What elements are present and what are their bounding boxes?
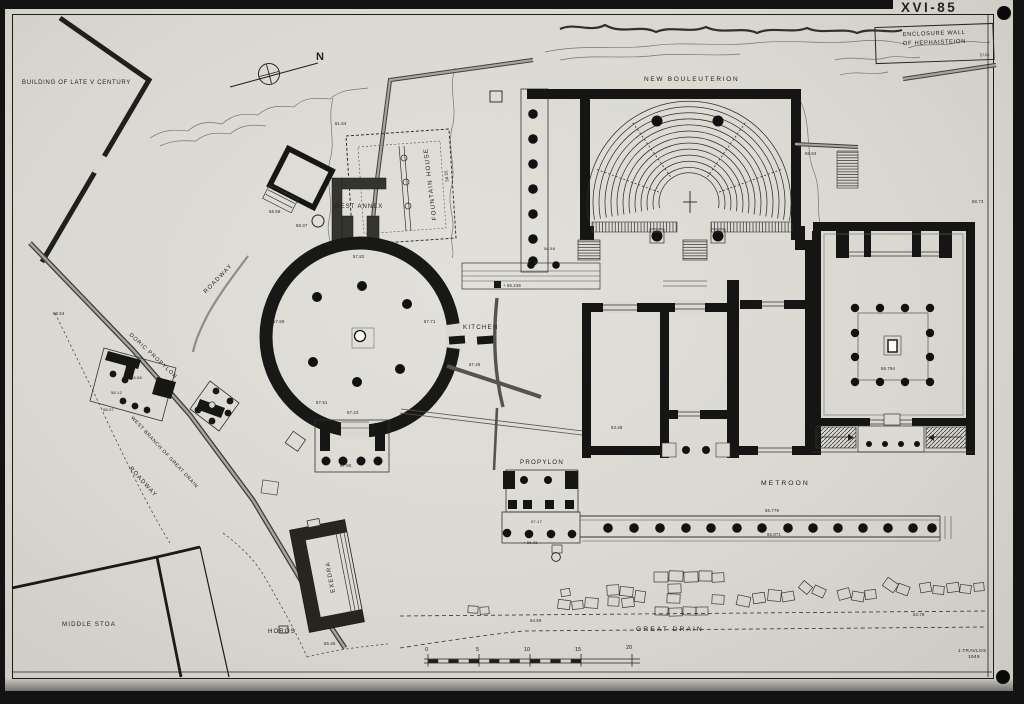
label-roadway-1: ROADWAY	[203, 263, 234, 295]
label-kitchen: KITCHEN	[463, 325, 499, 331]
label-elev-5743: 57.43	[347, 411, 358, 415]
label-elev-5459: 54.59	[530, 619, 541, 623]
label-new-bouleuterion: NEW BOULEUTERION	[644, 77, 739, 84]
label-north-n: N	[316, 52, 324, 63]
label-elev-5654: 56.54	[53, 312, 64, 316]
label-elev-5856: 58.56	[269, 210, 280, 214]
label-fountain-house: FOUNTAIN HOUSE	[423, 147, 438, 220]
label-elev-5812: 58.12	[111, 391, 122, 395]
label-building-late-v: BUILDING OF LATE V CENTURY	[22, 80, 131, 86]
label-elev-55871: 55.871	[767, 533, 781, 537]
label-elev-6164: 61.64	[335, 122, 346, 126]
label-sheet-number: XVI-85	[901, 1, 957, 15]
label-elev-5746: 57.46	[469, 363, 480, 367]
label-propylon: PROPYLON	[520, 460, 564, 466]
label-elev-5791: 57.91	[316, 401, 327, 405]
photo-top-edge	[0, 0, 893, 9]
label-elev-5765: 57.65	[340, 464, 351, 468]
label-middle-stoa: MIDDLE STOA	[62, 622, 116, 628]
label-exedra: EXEDRA	[325, 561, 336, 593]
label-scale-5: 5	[476, 648, 479, 654]
label-elev-5769: 57.69	[273, 320, 284, 324]
label-elev-5807: 58.07	[103, 408, 114, 412]
label-scale-10: 10	[524, 648, 530, 654]
label-west-annex: WEST ANNEX	[334, 204, 383, 210]
site-plan-photo: XVI-85BUILDING OF LATE V CENTURYN61.64FO…	[0, 0, 1024, 704]
label-elev-5886: 58.86	[131, 376, 142, 380]
label-signature-year: 1949	[968, 656, 980, 661]
label-elev-5858: 58.58	[544, 247, 555, 251]
enclosure-wall-label-line1: ENCLOSURE WALL	[876, 29, 993, 39]
plan-labels-layer: XVI-85BUILDING OF LATE V CENTURYN61.64FO…	[0, 0, 1024, 704]
label-elev-5855: 58.55	[444, 170, 450, 182]
label-elev-56794: 56.794	[881, 367, 895, 371]
label-doric-propylon: DORIC PROPYLON	[127, 333, 177, 381]
label-great-drain: GREAT DRAIN	[636, 627, 704, 634]
label-elev-5782: 57.82	[353, 255, 364, 259]
label-scale-0: 0	[425, 648, 428, 654]
label-metroon: METROON	[761, 481, 810, 488]
label-elev-5625: + 56.25	[523, 541, 538, 545]
label-horos: HOROS	[268, 629, 296, 635]
label-elev-55236: + 55.236	[503, 284, 521, 288]
label-scale-20: 20	[626, 646, 632, 652]
label-elev-5771: 57.71	[424, 320, 435, 324]
label-elev-5348: 53.48	[611, 426, 622, 430]
label-elev-5837: 58.37	[296, 224, 307, 228]
label-elev-5884: 58.84	[805, 152, 816, 156]
label-scale-15: 15	[575, 648, 581, 654]
label-elev-5717: 57.17	[531, 520, 542, 524]
label-elev-56779: 56.779	[765, 509, 779, 513]
enclosure-wall-elevation: 57.61	[980, 53, 990, 57]
label-elev-5378: 53.78	[913, 613, 924, 617]
label-elev-5546: 55.46	[324, 642, 335, 646]
enclosure-wall-label-line2: OF HEPHAISTEION	[876, 38, 993, 48]
label-roadway-2: ROADWAY	[128, 466, 158, 499]
label-elev-5873: 58.73	[972, 200, 983, 204]
enclosure-wall-label-box: ENCLOSURE WALL OF HEPHAISTEION 57.61	[874, 23, 994, 64]
